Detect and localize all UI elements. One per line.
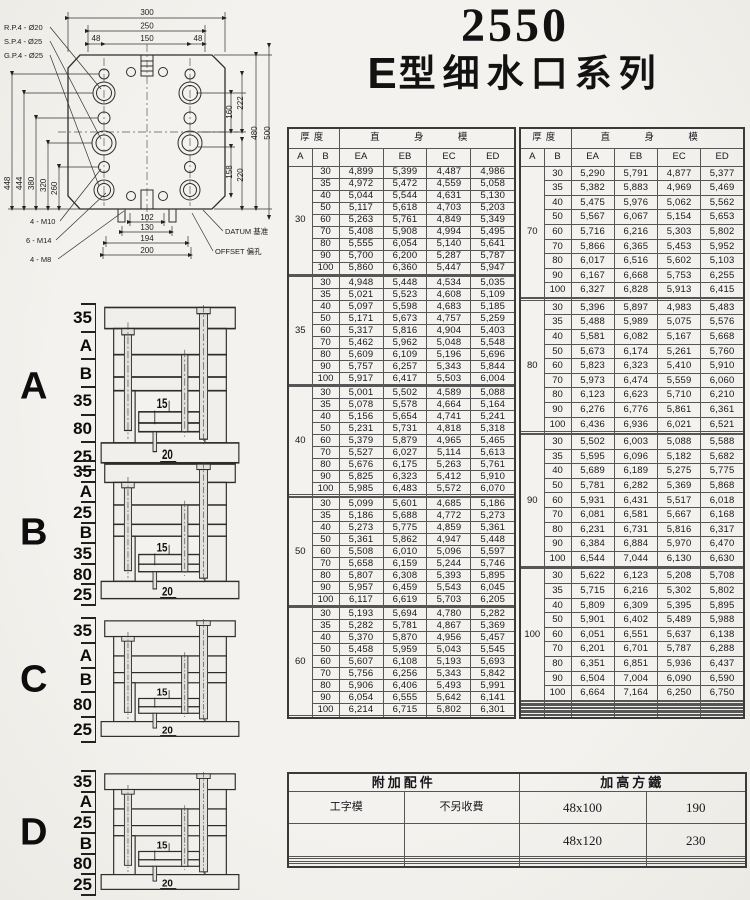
price-cell: 5,572 [427,483,471,495]
price-cell: 5,543 [427,581,471,593]
price-cell: 5,282 [471,608,515,620]
price-cell: 5,403 [471,324,515,336]
top-dimensions: 300 250 48 150 48 [68,8,225,52]
price-cell: 5,703 [427,593,471,605]
dimension-label: A [80,647,92,664]
dimension-label: 25 [73,721,92,738]
table-row: 405,6896,1895,2755,775 [520,464,744,479]
empty-cell [404,863,519,867]
column-header: B [312,148,339,166]
price-cell: 6,360 [383,262,427,274]
table-header-row: 附加配件加高方鐵 [288,773,746,791]
price-cell: 4,972 [339,178,383,190]
price-cell: 5,343 [427,361,471,373]
left-dimensions: 448 444 380 320 260 [3,74,99,209]
table-row: 505,2315,7314,8185,318 [288,423,515,435]
price-cell: 4,685 [427,497,471,509]
empty-cell [657,716,700,718]
dim-label: 48 [92,34,101,43]
riser-cell: 190 [646,791,746,824]
price-cell: 6,138 [701,627,744,642]
table-row: 355,7156,2165,3025,802 [520,583,744,598]
table-row: 905,7576,2575,3435,844 [288,361,515,373]
price-cell: 6,123 [571,388,614,403]
price-cell: 5,035 [471,276,515,288]
dim-label: 130 [140,223,154,232]
price-cell: 6,431 [614,493,657,508]
price-cell: 4,589 [427,387,471,399]
table-row: 906,2766,7765,8616,361 [520,403,744,418]
table-row: 706,2016,7015,7876,288 [520,642,744,657]
table-row: 605,6076,1085,1935,693 [288,656,515,668]
table-row: 705,7566,2565,3435,842 [288,668,515,680]
price-cell: 4,904 [427,324,471,336]
price-cell: 5,078 [339,399,383,411]
empty-cell [383,716,427,718]
price-cell: 4,983 [657,300,700,315]
thickness-header: 厚度 [520,128,571,148]
price-cell: 6,141 [471,692,515,704]
dimension-label: A [80,337,92,354]
price-cell: 6,776 [614,403,657,418]
table-row: 705,5276,0275,1145,613 [288,447,515,459]
dimension-label: B [80,365,92,382]
thickness-b-cell: 30 [312,276,339,288]
dimension-label: A [80,483,92,500]
thickness-b-cell: 90 [544,537,571,552]
spacer-row [520,716,744,718]
price-cell: 6,201 [571,642,614,657]
table-row: 40305,0015,5024,5895,088 [288,387,515,399]
price-cell: 5,613 [471,447,515,459]
price-cell: 6,828 [614,283,657,298]
price-cell: 5,393 [427,569,471,581]
price-cell: 5,302 [657,583,700,598]
price-cell: 5,058 [471,178,515,190]
price-cell: 5,618 [383,202,427,214]
price-cell: 5,957 [339,581,383,593]
price-cell: 5,193 [427,656,471,668]
table-row: 405,0975,5984,6835,185 [288,300,515,312]
table-row: 605,9316,4315,5176,018 [520,493,744,508]
price-cell: 6,045 [471,581,515,593]
table-row: 405,1565,6544,7415,241 [288,411,515,423]
price-cell: 7,164 [614,686,657,701]
price-cell: 6,384 [571,537,614,552]
column-header: EC [427,148,471,166]
price-cell: 5,658 [339,557,383,569]
riser-block-header: 加高方鐵 [519,773,746,791]
price-cell: 5,117 [339,202,383,214]
table-row: 906,0546,5555,6426,141 [288,692,515,704]
empty-cell [288,716,312,718]
thickness-b-cell: 90 [312,471,339,483]
price-cell: 5,369 [657,478,700,493]
price-cell: 5,976 [614,195,657,210]
price-cell: 5,825 [339,471,383,483]
table-row: 1005,9176,4175,5036,004 [288,373,515,385]
price-cell: 5,457 [471,632,515,644]
inner-dim-label: 15 [157,841,168,852]
price-cell: 5,578 [383,399,427,411]
dimension-tick [81,741,96,743]
dimension-label: B [80,524,92,541]
table-row: 705,9736,4745,5596,060 [520,373,744,388]
mold-section-drawing: 15 20 [94,305,246,469]
thickness-b-cell: 70 [544,239,571,254]
price-cell: 5,186 [339,509,383,521]
thickness-b-cell: 60 [544,493,571,508]
price-cell: 6,590 [701,671,744,686]
dim-label: 150 [140,34,154,43]
price-cell: 6,301 [471,704,515,716]
series-letter: E [367,49,398,98]
dim-label: 448 [3,176,12,190]
thickness-b-cell: 50 [312,533,339,545]
table-row [288,863,746,867]
price-cell: 5,895 [701,598,744,613]
price-cell: 5,502 [383,387,427,399]
price-cell: 6,205 [471,593,515,605]
price-cell: 6,256 [383,668,427,680]
dim-label: 380 [27,176,36,190]
thickness-b-cell: 70 [312,447,339,459]
price-cell: 6,544 [571,551,614,566]
price-cell: 5,637 [657,627,700,642]
mold-drawing-wrap: 15 20 [94,305,246,469]
price-cell: 5,962 [383,337,427,349]
price-cell: 5,259 [471,312,515,324]
table-row: 405,5816,0825,1675,668 [520,329,744,344]
thickness-b-cell: 30 [544,300,571,315]
thickness-b-cell: 100 [312,593,339,605]
thickness-b-cell: 60 [544,359,571,374]
price-cell: 6,216 [614,224,657,239]
table-row: 605,8236,3235,4105,910 [520,359,744,374]
screw-label: 4 - M8 [30,255,51,264]
mold-type-header: 直 身 模 [339,128,515,148]
price-cell: 5,598 [383,300,427,312]
thickness-b-cell: 60 [312,545,339,557]
price-cell: 5,382 [571,181,614,196]
empty-cell [571,716,614,718]
table-row: 1006,2146,7155,8026,301 [288,704,515,716]
price-cell: 6,474 [614,373,657,388]
thickness-b-cell: 90 [312,692,339,704]
price-cell: 5,781 [571,478,614,493]
bottom-dimensions: 102 130 194 200 [103,213,191,259]
thickness-b-cell: 90 [544,403,571,418]
price-cell: 6,174 [614,344,657,359]
table-row: 90305,5026,0035,0885,588 [520,435,744,450]
thickness-b-cell: 50 [312,644,339,656]
dimension-label: 80 [73,420,92,437]
empty-cell [520,716,544,718]
price-cell: 6,308 [383,569,427,581]
price-cell: 6,327 [571,283,614,298]
table-row: 505,7816,2825,3695,868 [520,478,744,493]
dim-label: 250 [140,22,154,31]
diagram-letter: A [20,366,47,409]
thickness-b-cell: 80 [312,349,339,361]
thickness-b-cell: 50 [544,210,571,225]
dim-label: 480 [250,126,259,140]
thickness-b-cell: 80 [544,388,571,403]
thickness-b-cell: 40 [312,632,339,644]
table-header-row: ABEAEBECED [520,148,744,166]
thickness-b-cell: 90 [312,581,339,593]
price-cell: 5,791 [614,166,657,181]
price-cell: 5,448 [383,276,427,288]
price-cell: 5,567 [571,210,614,225]
assembly-diagram-d: D35A25B8025 15 20 [8,770,260,896]
thickness-a-cell: 50 [288,497,312,605]
price-cell: 5,781 [383,620,427,632]
screw-label: 4 - M10 [30,217,55,226]
price-cell: 6,851 [614,656,657,671]
price-cell: 5,396 [571,300,614,315]
price-cell: 5,641 [471,238,515,250]
right-dimensions: 160 158 222 220 480 500 [196,46,272,218]
price-cell: 4,947 [427,533,471,545]
thickness-b-cell: 50 [312,202,339,214]
price-cell: 5,412 [427,471,471,483]
price-cell: 5,318 [471,423,515,435]
price-cell: 6,436 [571,417,614,432]
thickness-b-cell: 80 [312,459,339,471]
price-cell: 5,689 [571,464,614,479]
price-cell: 6,288 [701,642,744,657]
price-cell: 5,879 [383,435,427,447]
pin-label: G.P.4 - Ø25 [4,51,43,60]
price-cell: 5,654 [383,411,427,423]
price-cell: 5,088 [471,387,515,399]
price-cell: 6,715 [383,704,427,716]
thickness-b-cell: 40 [544,195,571,210]
leader-labels: R.P.4 - Ø20 S.P.4 - Ø25 G.P.4 - Ø25 4 - … [4,23,269,264]
price-cell: 5,273 [339,521,383,533]
table-row: 1005,8606,3605,4475,947 [288,262,515,274]
table-row: 605,3175,8164,9045,403 [288,324,515,336]
price-cell: 5,601 [383,497,427,509]
table-row: 405,8096,3095,3955,895 [520,598,744,613]
dimension-label: 25 [73,504,92,521]
price-cell: 5,458 [339,644,383,656]
thickness-b-cell: 30 [544,166,571,181]
price-cell: 5,048 [427,337,471,349]
thickness-b-cell: 80 [544,254,571,269]
price-cell: 6,664 [571,686,614,701]
thickness-b-cell: 100 [544,686,571,701]
riser-cell: 230 [646,824,746,857]
thickness-b-cell: 70 [544,642,571,657]
price-cell: 5,694 [383,608,427,620]
price-cell: 5,099 [339,497,383,509]
table-row: 405,0445,5444,6315,130 [288,190,515,202]
empty-cell [519,863,646,867]
price-cell: 5,844 [471,361,515,373]
riser-cell: 48x120 [519,824,646,857]
price-cell: 5,970 [657,537,700,552]
thickness-b-cell: 40 [312,521,339,533]
price-cell: 4,849 [427,214,471,226]
price-cell: 5,602 [657,254,700,269]
table-row: 605,5086,0105,0965,597 [288,545,515,557]
price-cell: 5,488 [571,315,614,330]
spacer-row [288,716,515,718]
price-cell: 6,231 [571,522,614,537]
table-row: 805,5556,0545,1405,641 [288,238,515,250]
price-cell: 5,910 [701,359,744,374]
price-cell: 5,447 [427,262,471,274]
empty-cell [288,863,404,867]
price-cell: 4,741 [427,411,471,423]
price-cell: 6,130 [657,551,700,566]
price-cell: 5,182 [657,449,700,464]
table-row: 1006,3276,8285,9136,415 [520,283,744,298]
price-cell: 5,653 [701,210,744,225]
price-cell: 5,989 [614,315,657,330]
price-cell: 6,018 [701,493,744,508]
price-cell: 4,994 [427,226,471,238]
price-cell: 5,263 [427,459,471,471]
price-cell: 5,140 [427,238,471,250]
price-cell: 6,323 [614,359,657,374]
price-cell: 5,985 [339,483,383,495]
dim-label: 102 [140,213,154,222]
dimension-label: B [80,835,92,852]
dim-label: 200 [140,246,154,255]
price-cell: 5,870 [383,632,427,644]
price-cell: 5,317 [339,324,383,336]
price-cell: 5,581 [571,329,614,344]
price-cell: 5,275 [657,464,700,479]
price-cell: 5,273 [471,509,515,521]
thickness-a-cell: 100 [520,569,544,700]
price-cell: 6,309 [614,598,657,613]
price-cell: 5,021 [339,288,383,300]
price-cell: 5,395 [657,598,700,613]
thickness-b-cell: 35 [544,583,571,598]
price-cell: 6,731 [614,522,657,537]
thickness-b-cell: 60 [312,214,339,226]
price-cell: 5,208 [657,569,700,584]
thickness-b-cell: 70 [312,557,339,569]
price-cell: 5,676 [339,459,383,471]
thickness-b-cell: 90 [312,361,339,373]
dimension-label: 35 [73,545,92,562]
price-cell: 6,936 [614,417,657,432]
table-row: 705,6586,1595,2445,746 [288,557,515,569]
price-cell: 6,082 [614,329,657,344]
inner-dim-label: 15 [157,395,168,411]
price-cell: 5,369 [471,620,515,632]
price-cell: 5,761 [471,459,515,471]
price-cell: 5,523 [383,288,427,300]
thickness-a-cell: 30 [288,166,312,274]
price-cell: 6,200 [383,250,427,262]
price-cell: 6,090 [657,671,700,686]
table-row: 60305,1935,6944,7805,282 [288,608,515,620]
thickness-a-cell: 80 [520,300,544,431]
thickness-b-cell: 30 [544,435,571,450]
price-cell: 5,931 [571,493,614,508]
thickness-b-cell: 100 [312,373,339,385]
thickness-b-cell: 35 [312,509,339,521]
price-cell: 6,668 [614,268,657,283]
price-cell: 5,959 [383,644,427,656]
table-row: 405,4755,9765,0625,562 [520,195,744,210]
table-row: 705,4625,9625,0485,548 [288,337,515,349]
table-header-row: 厚度直 身 模 [288,128,515,148]
dimension-label: 25 [73,814,92,831]
empty-cell [404,824,519,857]
assembly-diagram-c: C35AB8025 15 20 [8,617,260,743]
column-header: EC [657,148,700,166]
price-cell: 5,548 [471,337,515,349]
price-cell: 6,070 [471,483,515,495]
price-cell: 5,303 [657,224,700,239]
price-cell: 5,842 [471,668,515,680]
price-cell: 4,534 [427,276,471,288]
price-cell: 6,415 [701,283,744,298]
price-cell: 5,917 [339,373,383,385]
price-cell: 5,973 [571,373,614,388]
thickness-b-cell: 50 [544,344,571,359]
table-row: 905,8256,3235,4125,910 [288,471,515,483]
price-cell: 5,952 [701,239,744,254]
price-cell: 5,802 [427,704,471,716]
price-cell: 6,459 [383,581,427,593]
price-cell: 5,816 [383,324,427,336]
thickness-b-cell: 30 [544,569,571,584]
price-cell: 6,417 [383,373,427,385]
price-cell: 5,044 [339,190,383,202]
price-cell: 6,504 [571,671,614,686]
price-cell: 5,897 [614,300,657,315]
technical-drawing: 300 250 48 150 48 448 444 [0,0,285,278]
thickness-b-cell: 30 [312,497,339,509]
price-cell: 5,167 [657,329,700,344]
price-cell: 5,472 [383,178,427,190]
price-cell: 5,866 [571,239,614,254]
column-header: ED [701,148,744,166]
price-cell: 5,910 [471,471,515,483]
price-cell: 5,408 [339,226,383,238]
price-cell: 5,517 [657,493,700,508]
mold-section-drawing: 15 20 [94,462,246,604]
thickness-b-cell: 60 [544,627,571,642]
thickness-b-cell: 40 [312,300,339,312]
thickness-b-cell: 35 [544,315,571,330]
price-cell: 5,203 [471,202,515,214]
thickness-a-cell: 40 [288,387,312,495]
thickness-b-cell: 50 [544,478,571,493]
price-cell: 5,156 [339,411,383,423]
table-row: 355,0785,5784,6645,164 [288,399,515,411]
mold-drawing-wrap: 15 20 [94,462,246,604]
mold-section-drawing: 15 20 [94,619,246,741]
table-row: 505,1175,6184,7035,203 [288,202,515,214]
price-cell: 5,469 [701,181,744,196]
dim-label: 158 [225,165,234,179]
price-cell: 5,114 [427,447,471,459]
dim-label: 444 [15,176,24,190]
price-cell: 6,054 [339,692,383,704]
table-row: 405,3705,8704,9565,457 [288,632,515,644]
table-row: 48x120230 [288,824,746,857]
price-cell: 5,075 [657,315,700,330]
